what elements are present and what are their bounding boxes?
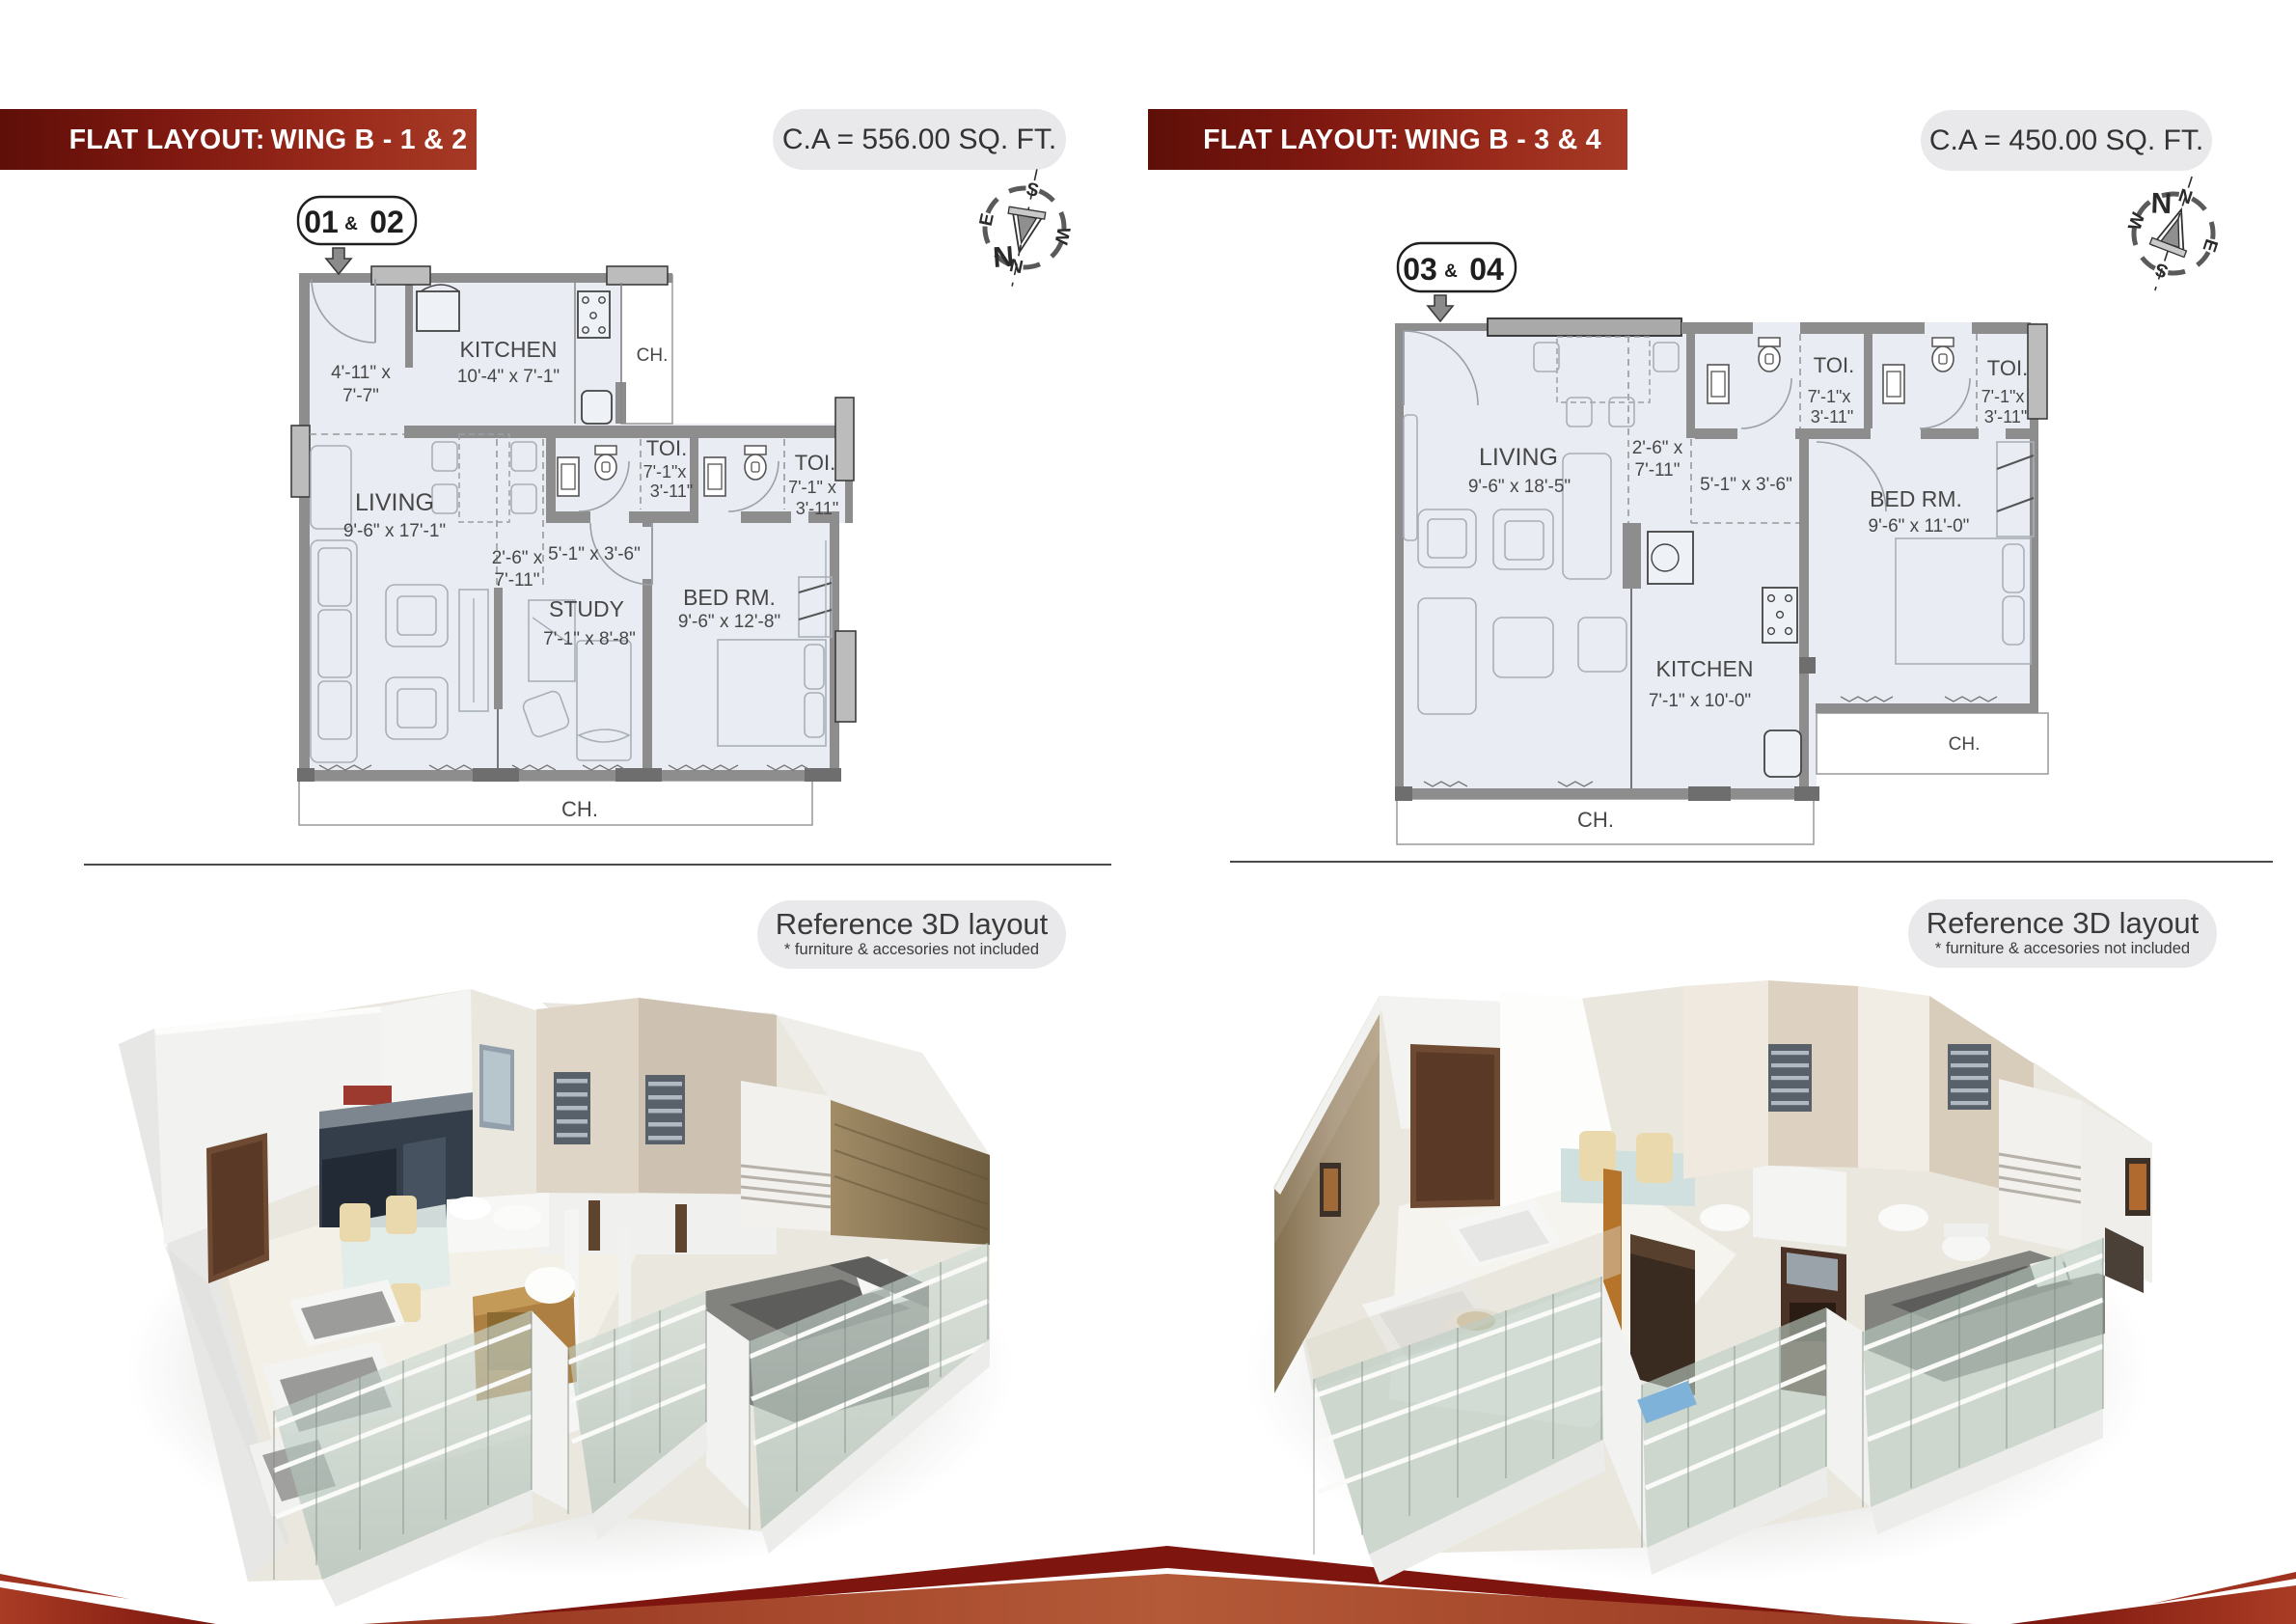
svg-text:KITCHEN: KITCHEN [460, 337, 558, 362]
svg-text:E: E [976, 211, 998, 228]
svg-text:04: 04 [1469, 252, 1504, 287]
svg-text:9'-6" x 17'-1": 9'-6" x 17'-1" [343, 521, 446, 541]
svg-text:N: N [2175, 185, 2195, 208]
svg-text:9'-6" x 11'-0": 9'-6" x 11'-0" [1869, 516, 1970, 537]
svg-text:9'-6" x 12'-8": 9'-6" x 12'-8" [678, 612, 780, 632]
svg-text:3'-11": 3'-11" [1984, 407, 2028, 427]
svg-text:STUDY: STUDY [549, 596, 624, 621]
svg-text:BED RM.: BED RM. [1870, 486, 1962, 511]
svg-text:E: E [2199, 236, 2222, 255]
svg-text:7'-1" x: 7'-1" x [788, 478, 836, 497]
svg-text:TOI.: TOI. [1987, 356, 2028, 380]
svg-text:7'-11": 7'-11" [1635, 460, 1681, 481]
svg-text:N: N [992, 241, 1015, 274]
svg-text:TOI.: TOI. [1814, 353, 1854, 377]
svg-text:3'-11": 3'-11" [650, 482, 694, 501]
svg-text:7'-7": 7'-7" [342, 386, 379, 406]
svg-text:&: & [1444, 261, 1458, 282]
svg-text:02: 02 [369, 205, 404, 239]
svg-text:TOI.: TOI. [795, 451, 835, 475]
svg-text:7'-11": 7'-11" [495, 570, 540, 591]
svg-text:CH.: CH. [1577, 808, 1614, 832]
svg-text:7'-1"x: 7'-1"x [1982, 387, 2025, 406]
svg-text:BED RM.: BED RM. [683, 585, 776, 610]
svg-text:3'-11": 3'-11" [796, 499, 839, 518]
svg-text:2'-6" x: 2'-6" x [492, 548, 543, 568]
svg-text:2'-6" x: 2'-6" x [1632, 438, 1683, 458]
svg-text:9'-6" x 18'-5": 9'-6" x 18'-5" [1468, 477, 1571, 497]
svg-text:CH.: CH. [1949, 734, 1981, 755]
svg-text:CH.: CH. [561, 797, 598, 821]
svg-text:W: W [1050, 225, 1073, 246]
svg-text:S: S [1025, 179, 1041, 202]
svg-text:N: N [2150, 187, 2173, 220]
svg-text:5'-1" x 3'-6": 5'-1" x 3'-6" [548, 544, 641, 564]
svg-text:KITCHEN: KITCHEN [1656, 656, 1754, 681]
svg-text:7'-1" x 10'-0": 7'-1" x 10'-0" [1649, 691, 1751, 711]
svg-text:TOI.: TOI. [646, 436, 687, 460]
svg-text:CH.: CH. [637, 345, 669, 366]
svg-text:7'-1"x: 7'-1"x [643, 462, 687, 482]
svg-text:LIVING: LIVING [355, 489, 434, 516]
svg-text:4'-11" x: 4'-11" x [331, 363, 391, 383]
svg-text:03: 03 [1403, 252, 1437, 287]
svg-text:01: 01 [304, 205, 339, 239]
svg-text:S: S [2153, 259, 2172, 282]
svg-text:LIVING: LIVING [1479, 444, 1558, 471]
svg-text:5'-1" x 3'-6": 5'-1" x 3'-6" [1700, 475, 1792, 495]
svg-text:7'-1" x 8'-8": 7'-1" x 8'-8" [543, 629, 636, 649]
svg-text:&: & [344, 214, 358, 234]
svg-text:7'-1"x: 7'-1"x [1808, 387, 1851, 406]
svg-text:3'-11": 3'-11" [1811, 407, 1854, 427]
svg-text:10'-4" x 7'-1": 10'-4" x 7'-1" [457, 367, 560, 387]
svg-text:W: W [2125, 210, 2150, 234]
